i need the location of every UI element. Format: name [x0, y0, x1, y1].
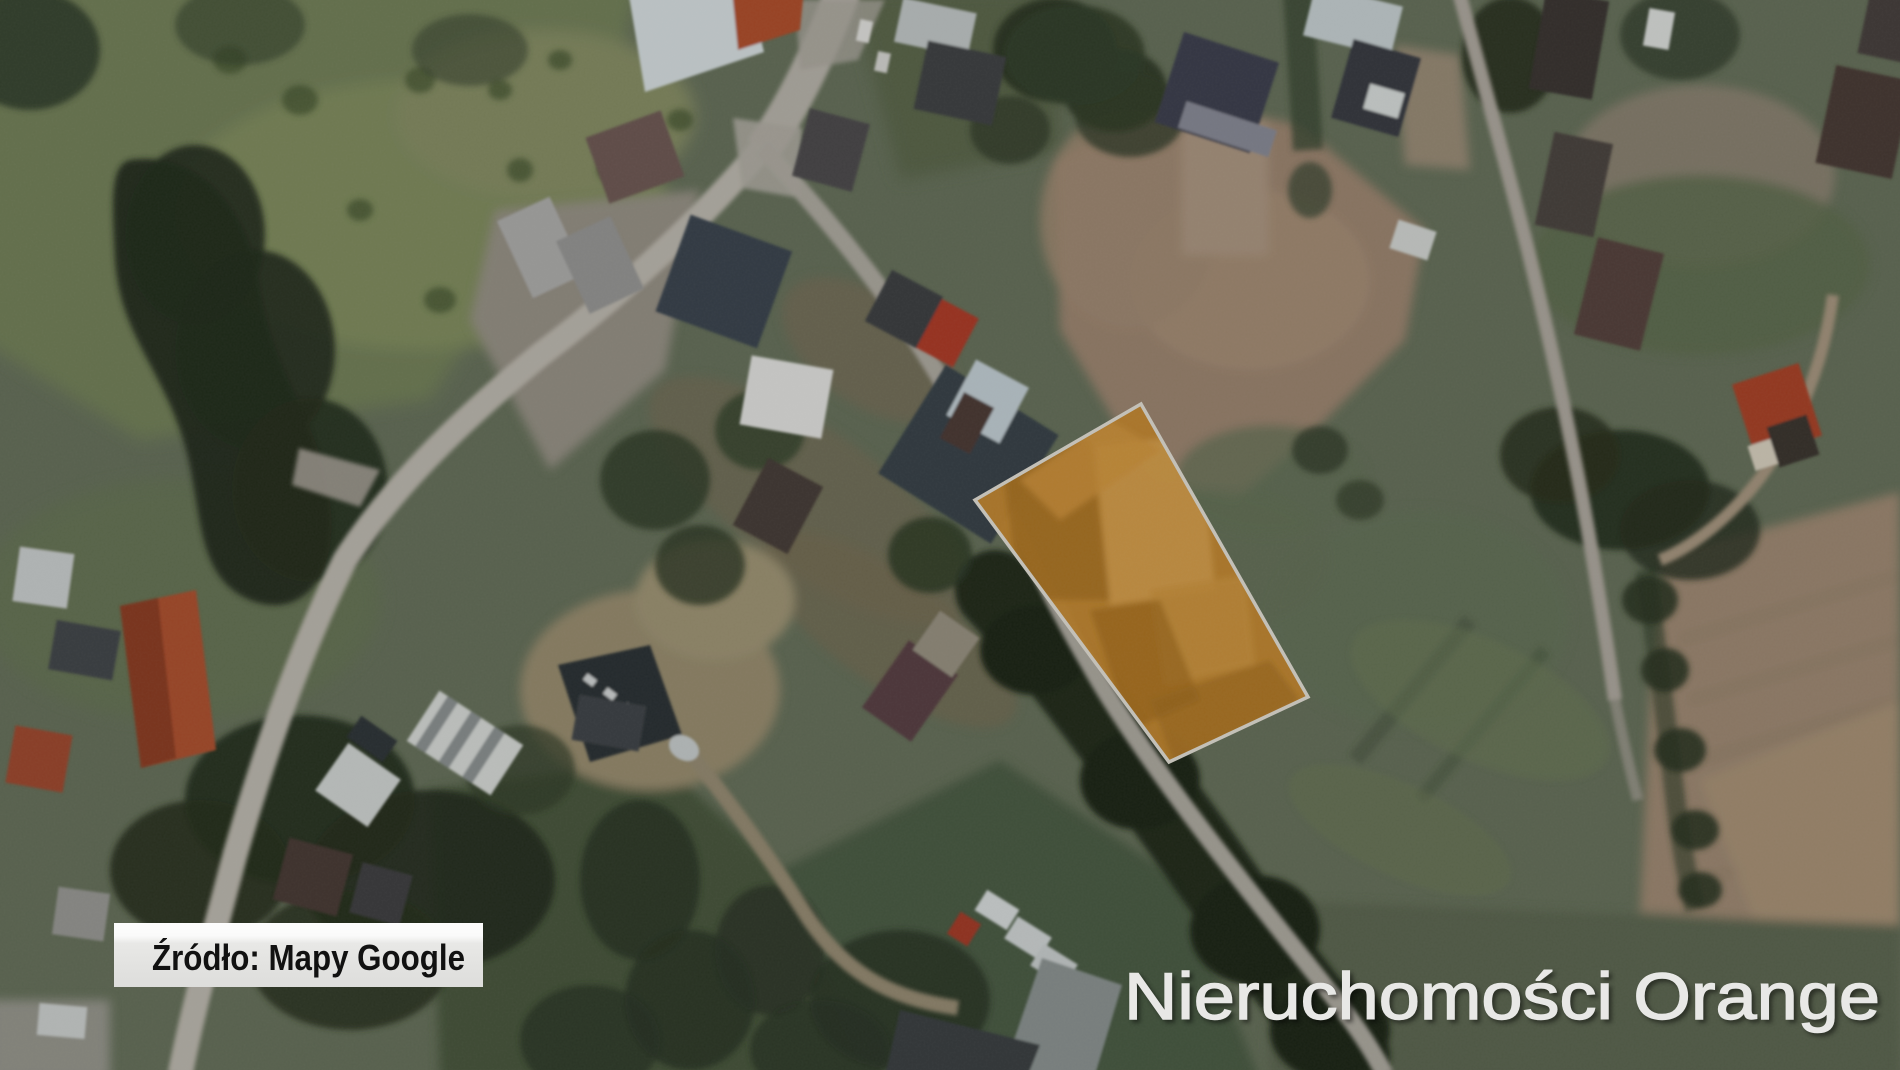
svg-text:Źródło: Mapy Google: Źródło: Mapy Google [152, 937, 465, 978]
svg-text:Nieruchomości Orange: Nieruchomości Orange [1124, 959, 1880, 1033]
